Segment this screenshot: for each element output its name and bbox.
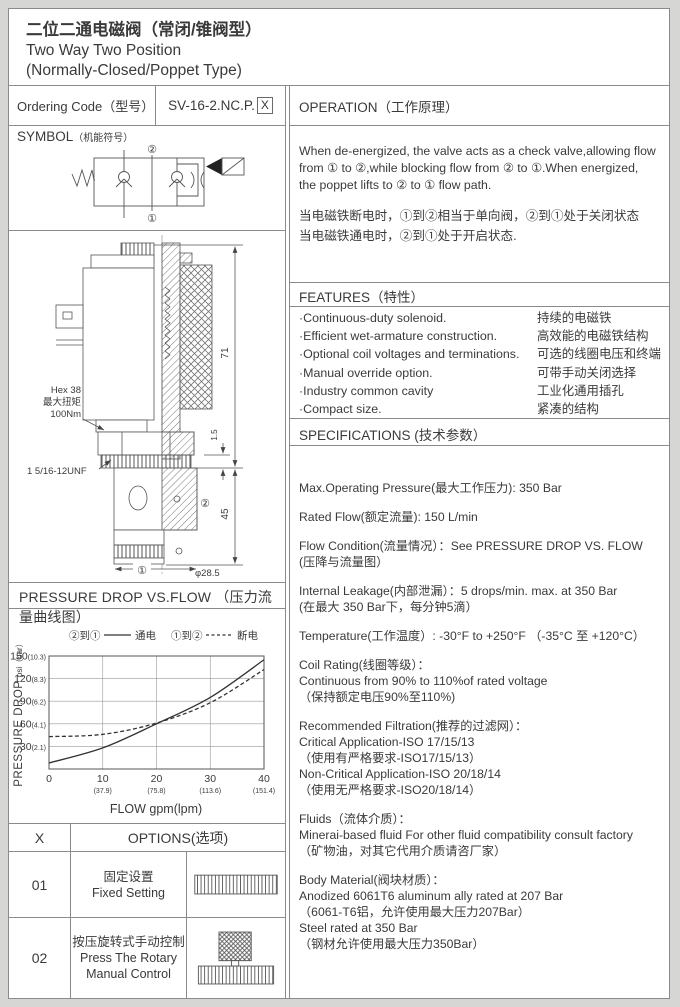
page-title-zh: 二位二通电磁阀（常闭/锥阀型） [26, 19, 669, 41]
x-tick-label: 20 [151, 773, 163, 785]
spec-line: Non-Critical Application-ISO 20/18/14 [299, 766, 665, 782]
symbol-section: SYMBOL（机能符号） [9, 126, 285, 231]
spec-line: （矿物油，对其它代用介质请咨厂家） [299, 843, 665, 859]
spec-line: Recommended Filtration(推荐的过滤网）： [299, 718, 665, 734]
ordering-code-value: SV-16-2.NC.P.X [156, 86, 285, 125]
operation-en-line: the poppet lifts to ② to ① flow path. [299, 177, 663, 194]
coil-winding-section [180, 265, 212, 409]
right-column: OPERATION（工作原理） When de-energized, the v… [289, 86, 669, 998]
spec-line: Internal Leakage(内部泄漏）：5 drops/min. max.… [299, 583, 665, 599]
symbol-port-2-label: ② [147, 144, 157, 156]
feature-item: ·Continuous-duty solenoid.持续的电磁铁 [290, 309, 669, 327]
pressure-flow-chart-svg: 30(2.1)60(4.1)90(6.2)120(8.3)150(10.3)01… [9, 609, 285, 823]
spec-line: Continuous from 90% to 110%of rated volt… [299, 673, 665, 689]
feature-item: ·Efficient wet-armature construction.高效能… [290, 327, 669, 345]
spec-line: Minerai-based fluid For other fluid comp… [299, 827, 665, 843]
feature-item: ·Manual override option.可带手动关闭选择 [290, 364, 669, 382]
symbol-port-1-label: ① [147, 213, 157, 225]
spec-line: (压降与流量图） [299, 554, 665, 570]
drawing-port-1-label: ① [137, 565, 147, 577]
operation-zh-line: 当电磁铁断电时，①到②相当于单向阀，②到①处于关闭状态 [299, 206, 663, 226]
spec-line: （保持额定电压90%至110%) [299, 689, 665, 705]
ordering-code-label: Ordering Code（型号） [9, 86, 156, 125]
spec-line: （使用有严格要求-ISO17/15/13） [299, 750, 665, 766]
x-tick-label: 10 [97, 773, 109, 785]
fixed-setting-cap-image [187, 852, 285, 918]
x-tick-lpm-label: (113.6) [199, 788, 221, 795]
dim-71-text: 71 [220, 347, 231, 359]
oring-grooves [114, 545, 164, 558]
x-tick-lpm-label: (151.4) [253, 788, 275, 795]
spec-paragraph: Internal Leakage(内部泄漏）：5 drops/min. max.… [299, 583, 665, 615]
option-row-2-code: 02 [9, 918, 71, 998]
rotary-knob-image [187, 918, 285, 998]
operation-section: When de-energized, the valve acts as a c… [290, 126, 669, 283]
spec-paragraph: Rated Flow(额定流量): 150 L/min [299, 509, 665, 525]
spec-line: Max.Operating Pressure(最大工作压力): 350 Bar [299, 480, 665, 496]
operation-zh-line: 当电磁铁通电时，②到①处于开启状态. [299, 226, 663, 246]
hex-label-1: Hex 38 [51, 385, 81, 396]
diameter-label: φ28.5 [195, 568, 220, 579]
main-area: Ordering Code（型号） SV-16-2.NC.P.X SYMBOL（… [9, 86, 669, 998]
model-code: SV-16-2.NC.P. [168, 98, 255, 113]
solenoid-triangle-icon [206, 158, 222, 175]
feature-item: ·Compact size.紧凑的结构 [290, 400, 669, 418]
connector-tab [56, 305, 83, 328]
x-tick-label: 30 [204, 773, 216, 785]
coil-body [83, 268, 154, 420]
option-row-1-code: 01 [9, 852, 71, 918]
x-axis-title: FLOW gpm(lpm) [110, 802, 202, 816]
cross-port-hole [129, 486, 147, 510]
options-header: OPTIONS(选项) [71, 824, 285, 852]
spec-paragraph: Recommended Filtration(推荐的过滤网）： Critical… [299, 718, 665, 798]
legend-label: 通电 [135, 629, 156, 642]
features-section: ·Continuous-duty solenoid.持续的电磁铁 ·Effici… [290, 307, 669, 419]
left-column: Ordering Code（型号） SV-16-2.NC.P.X SYMBOL（… [9, 86, 286, 998]
x-tick-lpm-label: (75.8) [147, 788, 165, 795]
spec-line: Body Material(阀块材质）： [299, 872, 665, 888]
spec-line: （钢材允许使用最大压力350Bar） [299, 936, 665, 952]
operation-en-line: from ① to ②,while blocking flow from ② t… [299, 160, 663, 177]
page-title-en-1: Two Way Two Position [26, 41, 669, 61]
thread-band [101, 455, 191, 468]
spec-line: （6061-T6铝，允许使用最大压力207Bar） [299, 904, 665, 920]
ordering-code-row: Ordering Code（型号） SV-16-2.NC.P.X [9, 86, 285, 126]
pressure-drop-header: PRESSURE DROP VS.FLOW （压力流量曲线图） [9, 583, 285, 609]
spec-line: Fluids（流体介质）： [299, 811, 665, 827]
spec-paragraph: Fluids（流体介质）： Minerai-based fluid For ot… [299, 811, 665, 859]
spec-line: Anodized 6061T6 aluminum ally rated at 2… [299, 888, 665, 904]
valve-cross-section-svg: Hex 38 最大扭矩 100Nm 1 5/16-12UNF 71 45 1.5… [9, 231, 285, 582]
spec-line: Flow Condition(流量情况）：See PRESSURE DROP V… [299, 538, 665, 554]
x-tick-label: 40 [258, 773, 270, 785]
spec-paragraph: Temperature(工作温度）: -30°F to +250°F （-35°… [299, 628, 665, 644]
legend-ports: ①到② [171, 630, 203, 642]
spec-line: Coil Rating(线圈等级）： [299, 657, 665, 673]
spec-paragraph: Body Material(阀块材质）： Anodized 6061T6 alu… [299, 872, 665, 952]
options-col-x-header: X [9, 824, 71, 852]
spec-line: Critical Application-ISO 17/15/13 [299, 734, 665, 750]
datasheet-page: 二位二通电磁阀（常闭/锥阀型） Two Way Two Position (No… [8, 8, 670, 999]
features-header: FEATURES（特性） [290, 283, 669, 307]
hex-label-2: 最大扭矩 [43, 396, 82, 408]
feature-item: ·Industry common cavity工业化通用插孔 [290, 382, 669, 400]
dim-1-5-text: 1.5 [210, 429, 219, 441]
spec-paragraph: Flow Condition(流量情况）：See PRESSURE DROP V… [299, 538, 665, 570]
model-code-option-box: X [257, 97, 273, 114]
operation-en-line: When de-energized, the valve acts as a c… [299, 143, 663, 160]
spec-paragraph: Coil Rating(线圈等级）： Continuous from 90% t… [299, 657, 665, 705]
specifications-header: SPECIFICATIONS (技术参数） [290, 419, 669, 446]
spec-line: (在最大 350 Bar下，每分钟5滴） [299, 599, 665, 615]
x-tick-label: 0 [46, 773, 52, 785]
drawing-port-2-label: ② [200, 498, 210, 510]
x-tick-lpm-label: (37.9) [94, 788, 112, 795]
rotary-knob-icon [193, 928, 279, 988]
title-block: 二位二通电磁阀（常闭/锥阀型） Two Way Two Position (No… [9, 9, 669, 86]
option-row-1-label: 固定设置 Fixed Setting [71, 852, 187, 918]
option-row-2-label: 按压旋转式手动控制 Press The Rotary Manual Contro… [71, 918, 187, 998]
legend-ports: ②到① [69, 630, 101, 642]
options-table: X OPTIONS(选项) 01 固定设置 Fixed Setting 02 按… [9, 824, 285, 998]
symbol-header: SYMBOL（机能符号） [17, 129, 285, 144]
dim-45-text: 45 [220, 508, 231, 520]
spec-line: （使用无严格要求-ISO20/18/14） [299, 782, 665, 798]
fixed-cap-icon [193, 872, 279, 898]
y-axis-title: PRESSURE DROP psi（bar） [13, 639, 25, 786]
feature-item: ·Optional coil voltages and terminations… [290, 345, 669, 363]
thread-size-label: 1 5/16-12UNF [27, 466, 87, 477]
cross-section-drawing: Hex 38 最大扭矩 100Nm 1 5/16-12UNF 71 45 1.5… [9, 231, 285, 583]
hydraulic-symbol-diagram: ② ① [17, 144, 286, 228]
spec-paragraph: Max.Operating Pressure(最大工作压力): 350 Bar [299, 480, 665, 496]
page-title-en-2: (Normally-Closed/Poppet Type) [26, 61, 669, 81]
specifications-section: Max.Operating Pressure(最大工作压力): 350 Bar … [290, 446, 669, 998]
legend-label: 断电 [237, 629, 258, 642]
pressure-drop-chart: 30(2.1)60(4.1)90(6.2)120(8.3)150(10.3)01… [9, 609, 285, 824]
spec-line: Temperature(工作温度）: -30°F to +250°F （-35°… [299, 628, 665, 644]
spec-line: Steel rated at 350 Bar [299, 920, 665, 936]
operation-header: OPERATION（工作原理） [290, 86, 669, 126]
hex-label-3: 100Nm [50, 409, 81, 420]
spec-line: Rated Flow(额定流量): 150 L/min [299, 509, 665, 525]
